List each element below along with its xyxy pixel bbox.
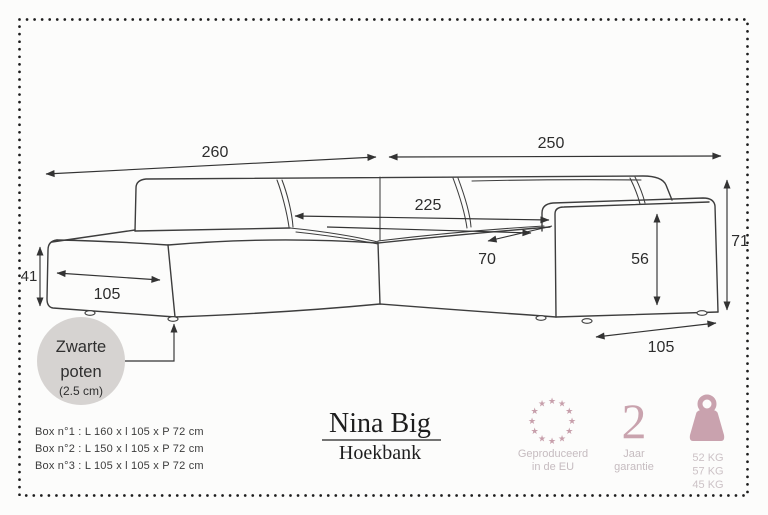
warranty-badge: 2 Jaar garantie [614,393,654,473]
eu-star: ★ [548,436,556,446]
product-name: Nina Big [329,408,431,439]
arrow-70-a [327,227,531,233]
title-block: Nina Big Hoekbank [322,408,441,464]
weight-icon [690,397,724,441]
eu-badge: ★ ★ ★ ★ ★ ★ ★ ★ ★ ★ ★ ★ Geproduceerd in … [518,396,588,473]
weight-value-3: 45 KG [692,479,723,491]
dim-label-70: 70 [478,251,496,268]
spec-sheet: 260 250 225 70 56 71 41 105 105 Zwarte p… [0,0,768,515]
backrest-seam [458,178,471,227]
backrest-seam [635,177,645,203]
dim-label-56: 56 [631,251,649,268]
dim-label-71: 71 [731,233,749,250]
eu-star: ★ [538,433,546,443]
product-type: Hoekbank [339,442,421,464]
weight-value-2: 57 KG [692,466,723,478]
chaise-top-back-edge [52,230,135,242]
warranty-caption-line1: Jaar [623,448,645,460]
dim-label-105-right: 105 [648,339,675,356]
backrest-piping [472,180,641,181]
backrest-seam [453,178,467,228]
eu-caption-line1: Geproduceerd [518,448,588,460]
dim-label-250: 250 [538,135,565,152]
seat-front-bottom-right [380,304,556,317]
eu-caption-line2: in de EU [532,461,574,473]
eu-stars-icon: ★ ★ ★ ★ ★ ★ ★ ★ ★ ★ ★ ★ [528,396,576,446]
arrow-250 [389,156,721,157]
armrest-outline [542,198,718,312]
legs-note-line3: (2.5 cm) [59,384,103,398]
eu-star: ★ [565,406,573,416]
eu-star: ★ [558,433,566,443]
armrest-bottom [556,312,718,317]
warranty-caption-line2: garantie [614,461,654,473]
weight-value-1: 52 KG [692,452,723,464]
eu-star: ★ [568,416,576,426]
legs-note-leader [125,324,174,361]
eu-star: ★ [531,426,539,436]
dim-label-260: 260 [202,144,229,161]
legs-note-line2: poten [60,363,101,381]
eu-star: ★ [565,426,573,436]
eu-star: ★ [528,416,536,426]
arrow-225 [295,216,549,220]
seat-front-bottom-left [175,304,380,317]
legs-note: Zwarte poten (2.5 cm) [37,317,174,405]
chaise-face-top [57,240,168,245]
backrest-bottom-edge [135,228,290,231]
dim-label-225: 225 [415,197,442,214]
weight-badge: 52 KG 57 KG 45 KG [690,397,724,491]
weight-icon-handle [700,397,714,411]
dimension-labels: 260 250 225 70 56 71 41 105 105 [21,135,749,356]
box-line-2: Box n°2 : L 150 x l 105 x P 72 cm [35,443,204,455]
sofa-leg [582,319,592,324]
arrow-105-left [57,273,160,280]
chaise-face-edge [168,245,175,317]
diagram-canvas: 260 250 225 70 56 71 41 105 105 Zwarte p… [0,0,768,515]
eu-star: ★ [548,396,556,406]
corner-edge [378,243,380,304]
backrest-seam [277,180,289,227]
backrest-outline [135,176,672,231]
box-line-1: Box n°1 : L 160 x l 105 x P 72 cm [35,426,204,438]
sofa-leg [536,316,546,321]
sofa-leg [85,311,95,316]
legs-note-line1: Zwarte [56,338,106,356]
sofa-drawing [47,176,718,323]
arrow-70-b [488,226,552,241]
sofa-leg [168,317,178,322]
sofa-leg [697,311,707,316]
eu-star: ★ [538,399,546,409]
dimension-arrows [40,156,727,337]
box-line-3: Box n°3 : L 105 x l 105 x P 72 cm [35,460,204,472]
weight-icon-body [690,410,724,441]
arrow-105-right [596,323,716,337]
chaise-face [47,240,175,317]
box-list: Box n°1 : L 160 x l 105 x P 72 cm Box n°… [35,426,204,472]
seat-front-top-left [168,240,378,245]
dim-label-105-left: 105 [94,286,121,303]
dim-label-41: 41 [21,268,38,285]
warranty-number: 2 [622,393,647,449]
